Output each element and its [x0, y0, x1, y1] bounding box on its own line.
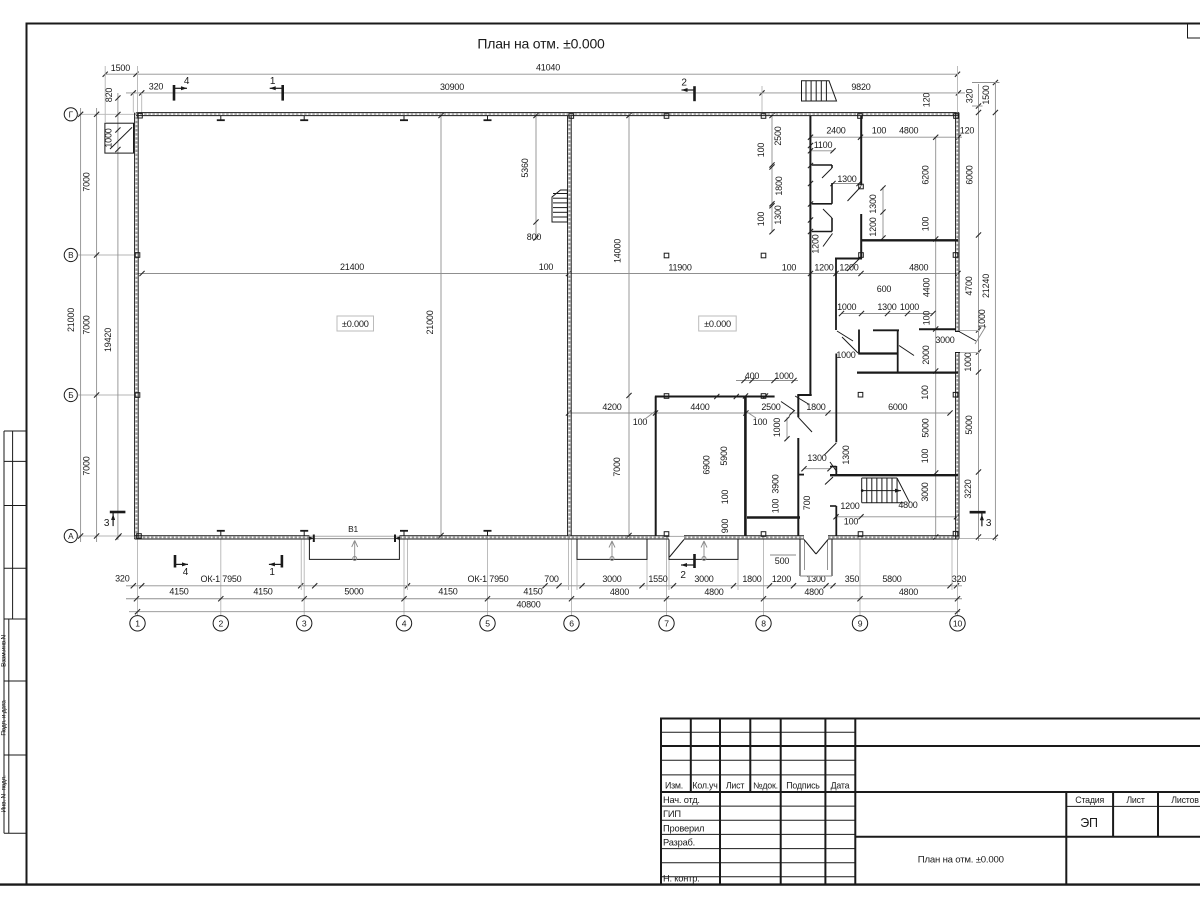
svg-text:100: 100 — [720, 490, 730, 505]
svg-text:Лист: Лист — [1126, 795, 1144, 805]
svg-text:Дата: Дата — [831, 781, 850, 791]
svg-text:2500: 2500 — [761, 402, 780, 412]
svg-text:1: 1 — [269, 567, 275, 578]
svg-text:Н. контр.: Н. контр. — [663, 874, 700, 884]
svg-text:2: 2 — [681, 78, 687, 89]
svg-text:800: 800 — [527, 232, 542, 242]
svg-text:Листов: Листов — [1171, 795, 1199, 805]
svg-text:1800: 1800 — [774, 176, 784, 195]
svg-text:1300: 1300 — [806, 574, 825, 584]
svg-text:14000: 14000 — [613, 239, 623, 263]
svg-text:3: 3 — [302, 619, 307, 629]
svg-text:100: 100 — [756, 212, 766, 227]
svg-text:3220: 3220 — [963, 479, 973, 498]
svg-text:320: 320 — [115, 574, 130, 584]
svg-text:1000: 1000 — [977, 309, 987, 328]
svg-text:500: 500 — [775, 556, 790, 566]
svg-text:1300: 1300 — [807, 453, 826, 463]
svg-text:120: 120 — [922, 93, 932, 108]
svg-text:План на отм. ±0.000: План на отм. ±0.000 — [477, 36, 605, 52]
svg-text:План на отм. ±0.000: План на отм. ±0.000 — [918, 855, 1004, 866]
svg-text:9: 9 — [858, 619, 863, 629]
svg-text:21000: 21000 — [66, 308, 76, 332]
svg-text:4: 4 — [184, 76, 190, 87]
svg-text:100: 100 — [920, 385, 930, 400]
svg-text:1800: 1800 — [806, 402, 825, 412]
svg-text:3: 3 — [104, 518, 110, 529]
svg-text:1000: 1000 — [963, 352, 973, 371]
svg-text:100: 100 — [921, 217, 931, 232]
svg-text:А: А — [68, 532, 74, 541]
svg-text:1550: 1550 — [648, 574, 667, 584]
svg-text:1: 1 — [135, 619, 140, 629]
svg-text:3: 3 — [986, 518, 992, 529]
svg-text:700: 700 — [802, 496, 812, 511]
svg-text:4700: 4700 — [964, 276, 974, 295]
svg-text:350: 350 — [845, 574, 860, 584]
svg-text:6000: 6000 — [965, 165, 975, 184]
svg-text:4400: 4400 — [922, 278, 932, 297]
svg-text:В: В — [68, 251, 74, 260]
svg-text:№док.: №док. — [753, 781, 778, 791]
svg-text:7000: 7000 — [81, 456, 91, 475]
svg-text:5: 5 — [485, 619, 490, 629]
svg-text:120: 120 — [960, 126, 975, 136]
svg-text:100: 100 — [782, 263, 797, 273]
svg-text:4800: 4800 — [909, 263, 928, 273]
svg-text:21000: 21000 — [425, 310, 435, 334]
svg-text:1800: 1800 — [742, 574, 761, 584]
svg-text:100: 100 — [844, 517, 859, 527]
svg-text:ОК-1 7950: ОК-1 7950 — [468, 574, 509, 584]
svg-text:6200: 6200 — [921, 165, 931, 184]
svg-text:11900: 11900 — [668, 263, 692, 273]
svg-text:7000: 7000 — [81, 172, 91, 191]
svg-text:100: 100 — [539, 262, 554, 272]
svg-text:2: 2 — [219, 619, 224, 629]
svg-text:3000: 3000 — [935, 335, 954, 345]
svg-text:Проверил: Проверил — [663, 823, 704, 833]
svg-text:21240: 21240 — [981, 274, 991, 298]
svg-text:4150: 4150 — [169, 587, 188, 597]
svg-text:ОК-1 7950: ОК-1 7950 — [201, 574, 242, 584]
svg-text:3900: 3900 — [771, 474, 781, 493]
svg-text:5360: 5360 — [520, 158, 530, 177]
svg-text:4800: 4800 — [899, 587, 918, 597]
svg-text:4150: 4150 — [253, 587, 272, 597]
svg-text:3000: 3000 — [602, 574, 621, 584]
svg-text:7: 7 — [664, 619, 669, 629]
svg-text:19420: 19420 — [103, 328, 113, 352]
svg-text:1000: 1000 — [836, 350, 855, 360]
svg-text:30900: 30900 — [440, 82, 464, 92]
svg-text:100: 100 — [771, 499, 781, 514]
svg-text:Подпись: Подпись — [786, 781, 820, 791]
svg-text:320: 320 — [952, 574, 967, 584]
svg-text:100: 100 — [756, 143, 766, 158]
svg-text:320: 320 — [965, 89, 975, 104]
svg-text:3000: 3000 — [694, 574, 713, 584]
svg-text:6000: 6000 — [888, 402, 907, 412]
svg-text:3000: 3000 — [920, 482, 930, 501]
svg-text:1200: 1200 — [772, 574, 791, 584]
svg-text:1200: 1200 — [811, 234, 821, 253]
svg-text:1300: 1300 — [773, 205, 783, 224]
svg-text:100: 100 — [753, 417, 768, 427]
svg-text:1200: 1200 — [840, 501, 859, 511]
svg-text:±0.000: ±0.000 — [704, 319, 731, 329]
svg-text:ЭП: ЭП — [1080, 816, 1098, 830]
svg-text:1200: 1200 — [814, 263, 833, 273]
svg-text:2: 2 — [680, 570, 686, 581]
svg-text:1200: 1200 — [868, 217, 878, 236]
svg-text:4400: 4400 — [690, 402, 709, 412]
svg-text:900: 900 — [720, 519, 730, 534]
svg-text:5000: 5000 — [964, 415, 974, 434]
svg-text:2500: 2500 — [773, 126, 783, 145]
svg-text:5000: 5000 — [920, 418, 930, 437]
svg-text:5000: 5000 — [344, 587, 363, 597]
svg-text:2400: 2400 — [826, 126, 845, 136]
svg-text:9820: 9820 — [851, 82, 870, 92]
svg-text:8: 8 — [761, 619, 766, 629]
svg-text:Б: Б — [68, 391, 73, 400]
svg-text:7000: 7000 — [612, 457, 622, 476]
svg-text:6: 6 — [569, 619, 574, 629]
svg-text:1500: 1500 — [981, 85, 991, 104]
svg-text:Изм.: Изм. — [665, 781, 683, 791]
svg-text:4200: 4200 — [602, 402, 621, 412]
svg-text:Инв. N- подл.: Инв. N- подл. — [1, 775, 8, 813]
svg-text:5900: 5900 — [719, 446, 729, 465]
svg-text:Подп. и дата: Подп. и дата — [1, 700, 8, 736]
svg-text:4150: 4150 — [438, 587, 457, 597]
svg-text:600: 600 — [877, 284, 892, 294]
svg-text:100: 100 — [920, 449, 930, 464]
svg-text:10: 10 — [953, 619, 963, 629]
svg-text:4800: 4800 — [704, 587, 723, 597]
svg-text:4800: 4800 — [804, 587, 823, 597]
svg-text:1300: 1300 — [877, 302, 896, 312]
svg-text:100: 100 — [922, 311, 932, 326]
svg-text:1300: 1300 — [837, 174, 856, 184]
svg-text:400: 400 — [745, 371, 760, 381]
svg-text:4800: 4800 — [898, 500, 917, 510]
svg-text:7000: 7000 — [81, 315, 91, 334]
svg-text:6900: 6900 — [702, 455, 712, 474]
svg-text:21400: 21400 — [340, 262, 364, 272]
svg-text:2000: 2000 — [921, 345, 931, 364]
svg-text:1300: 1300 — [841, 445, 851, 464]
svg-text:1: 1 — [270, 76, 276, 87]
svg-text:5800: 5800 — [882, 574, 901, 584]
svg-text:ГИП: ГИП — [663, 809, 681, 819]
svg-text:320: 320 — [149, 82, 164, 92]
svg-text:1500: 1500 — [111, 63, 130, 73]
svg-text:1000: 1000 — [774, 371, 793, 381]
svg-text:Разраб.: Разраб. — [663, 837, 695, 847]
svg-text:4800: 4800 — [610, 587, 629, 597]
svg-text:Лист: Лист — [726, 781, 744, 791]
svg-text:1100: 1100 — [814, 140, 833, 150]
svg-text:4800: 4800 — [899, 126, 918, 136]
svg-text:1000: 1000 — [837, 302, 856, 312]
svg-text:4150: 4150 — [523, 587, 542, 597]
svg-text:В1: В1 — [348, 524, 358, 534]
svg-text:1000: 1000 — [772, 418, 782, 437]
svg-text:820: 820 — [104, 88, 114, 103]
svg-text:41040: 41040 — [536, 63, 560, 73]
svg-text:40800: 40800 — [516, 600, 540, 610]
svg-text:4: 4 — [402, 619, 407, 629]
svg-text:700: 700 — [544, 574, 559, 584]
svg-text:±0.000: ±0.000 — [342, 319, 369, 329]
svg-text:1000: 1000 — [900, 302, 919, 312]
svg-text:4: 4 — [183, 567, 189, 578]
svg-text:Нач. отд.: Нач. отд. — [663, 795, 700, 805]
svg-text:1200: 1200 — [839, 263, 858, 273]
svg-text:Стадия: Стадия — [1075, 795, 1104, 805]
svg-text:Взам.инв.N-: Взам.инв.N- — [1, 633, 8, 667]
svg-text:Кол.уч: Кол.уч — [692, 781, 717, 791]
svg-text:1300: 1300 — [868, 194, 878, 213]
svg-text:100: 100 — [872, 126, 887, 136]
